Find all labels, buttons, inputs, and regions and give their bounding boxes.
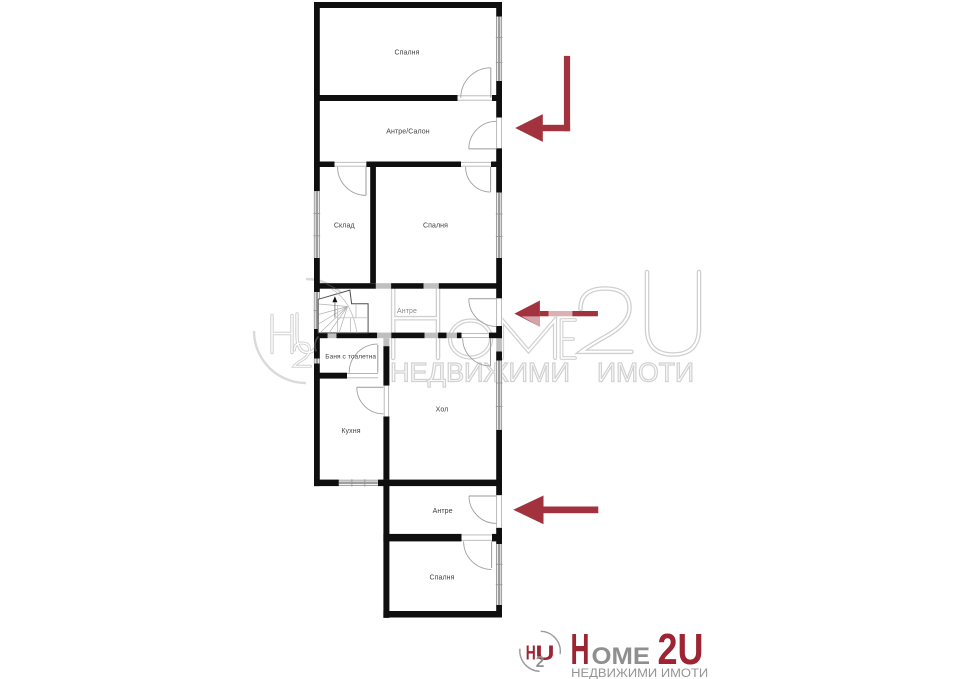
svg-text:2: 2 (536, 654, 545, 671)
svg-text:ИМОТИ: ИМОТИ (597, 358, 694, 388)
svg-text:Склад: Склад (334, 223, 355, 230)
svg-text:НЕДВИЖИМИ ИМОТИ: НЕДВИЖИМИ ИМОТИ (571, 666, 708, 679)
svg-text:Кухня: Кухня (341, 428, 360, 435)
svg-text:Антре: Антре (397, 308, 417, 315)
svg-text:Спалня: Спалня (423, 223, 448, 230)
svg-text:Спалня: Спалня (394, 49, 419, 56)
svg-text:НЕДВИЖИМИ: НЕДВИЖИМИ (390, 358, 570, 388)
svg-text:H: H (526, 643, 536, 665)
svg-text:Антре: Антре (433, 508, 453, 515)
svg-text:Спалня: Спалня (429, 575, 454, 582)
svg-text:Баня с тоалетна: Баня с тоалетна (325, 354, 376, 361)
svg-text:Хол: Хол (436, 407, 449, 414)
svg-text:Антре/Салон: Антре/Салон (386, 129, 430, 136)
